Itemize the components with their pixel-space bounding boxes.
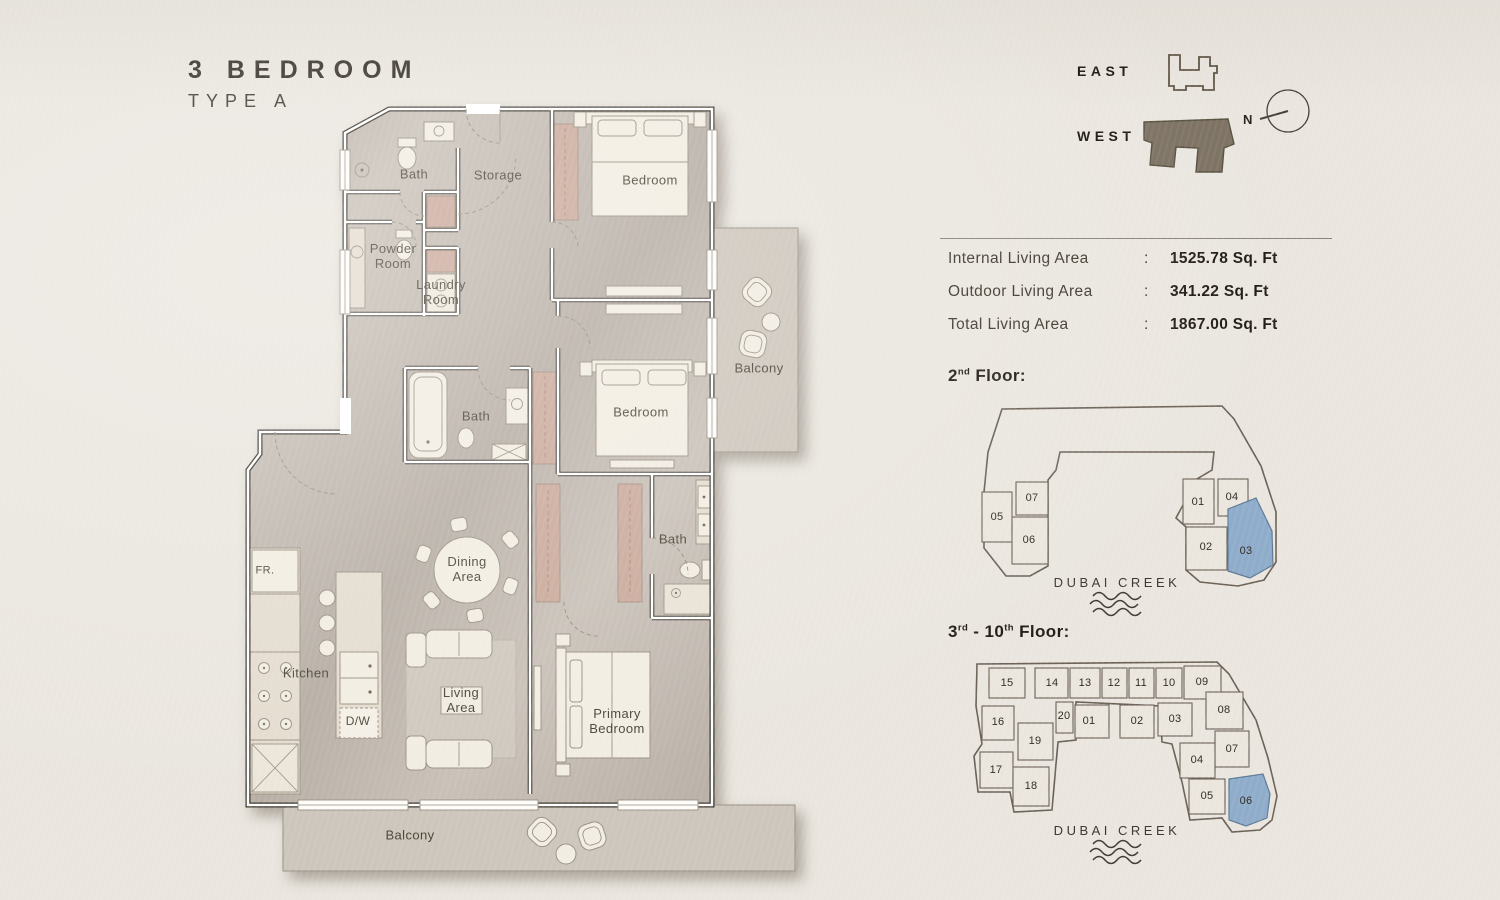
compass-icon — [1260, 90, 1309, 132]
floor3to10-unit-03: 03 — [1169, 713, 1182, 725]
floor3to10-unit-12: 12 — [1108, 677, 1121, 689]
creek-waves-icon — [1090, 593, 1141, 616]
west-building-icon — [1144, 119, 1234, 172]
room-label-bath-1: Bath — [400, 168, 428, 183]
room-label-living-area: Living Area — [443, 686, 479, 716]
floor2-heading-text: Floor: — [970, 366, 1026, 385]
floor3-ordinal: rd — [958, 622, 968, 633]
floor3to10-unit-07: 07 — [1226, 743, 1239, 755]
page-title: 3 BEDROOM TYPE A — [188, 56, 420, 112]
floor2-unit-06: 06 — [1023, 534, 1036, 546]
stat-label: Outdoor Living Area — [948, 283, 1144, 301]
plan-variant-subtitle: TYPE A — [188, 91, 420, 112]
stat-label: Total Living Area — [948, 316, 1144, 334]
floor2-unit-05: 05 — [991, 511, 1004, 523]
room-label-bedroom-2: Bedroom — [613, 406, 669, 421]
floor2-ordinal: nd — [958, 366, 970, 377]
floor2-unit-03-highlighted: 03 — [1240, 545, 1253, 557]
compass-north-label: N — [1243, 112, 1252, 127]
plan-type-title: 3 BEDROOM — [188, 56, 420, 85]
floor2-unit-04: 04 — [1226, 491, 1239, 503]
room-label-balcony-right: Balcony — [734, 362, 783, 377]
room-label-primary-bedroom: Primary Bedroom — [589, 707, 645, 737]
west-label: WEST — [1077, 128, 1135, 144]
floor3to10-unit-10: 10 — [1163, 677, 1176, 689]
stat-value: 1867.00 Sq. Ft — [1170, 316, 1348, 334]
room-label-bath-3: Bath — [659, 533, 687, 548]
floor3to10-unit-05: 05 — [1201, 790, 1214, 802]
floor-plan — [230, 95, 820, 885]
room-label-dishwasher: D/W — [346, 715, 371, 729]
floor3to10-unit-08: 08 — [1218, 704, 1231, 716]
floor3to10-unit-15: 15 — [1001, 677, 1014, 689]
floor3to10-unit-09: 09 — [1196, 676, 1209, 688]
stat-row-total: Total Living Area : 1867.00 Sq. Ft — [948, 316, 1348, 334]
floor3to10-unit-01: 01 — [1083, 715, 1096, 727]
room-label-laundry-room: Laundry Room — [416, 278, 466, 308]
floor3to10-unit-17: 17 — [990, 764, 1003, 776]
floor3to10-unit-14: 14 — [1046, 677, 1059, 689]
area-stats: Internal Living Area : 1525.78 Sq. Ft Ou… — [948, 250, 1348, 349]
room-label-kitchen: Kitchen — [283, 667, 329, 682]
room-label-bath-2: Bath — [462, 410, 490, 425]
stat-label: Internal Living Area — [948, 250, 1144, 268]
east-building-icon — [1169, 55, 1217, 90]
floor2-unit-07: 07 — [1026, 492, 1039, 504]
brochure-page: 3 BEDROOM TYPE A EAST WEST N Internal Li… — [0, 0, 1500, 900]
room-label-balcony-bottom: Balcony — [385, 829, 434, 844]
room-label-storage: Storage — [474, 169, 522, 184]
floor2-unit-01: 01 — [1192, 496, 1205, 508]
floor3to10-heading-text: Floor: — [1014, 622, 1070, 641]
floor3to10-unit-19: 19 — [1029, 735, 1042, 747]
floor2-unit-02: 02 — [1200, 541, 1213, 553]
room-label-dining-area: Dining Area — [447, 555, 486, 585]
east-label: EAST — [1077, 63, 1132, 79]
floor10-ordinal: th — [1004, 622, 1014, 633]
floor10-number: 10 — [984, 622, 1004, 641]
floor3to10-unit-18: 18 — [1025, 780, 1038, 792]
stat-separator: : — [1144, 316, 1170, 334]
floor2-number: 2 — [948, 366, 958, 385]
stats-divider — [940, 238, 1332, 239]
stat-row-internal: Internal Living Area : 1525.78 Sq. Ft — [948, 250, 1348, 268]
dubai-creek-label-floor2: DUBAI CREEK — [1054, 575, 1181, 590]
stat-value: 341.22 Sq. Ft — [1170, 283, 1348, 301]
stat-row-outdoor: Outdoor Living Area : 341.22 Sq. Ft — [948, 283, 1348, 301]
stat-separator: : — [1144, 250, 1170, 268]
floor3to10-unit-06-highlighted: 06 — [1240, 795, 1253, 807]
graphics-layer — [0, 0, 1500, 900]
room-label-powder-room: Powder Room — [370, 242, 416, 272]
floor3to10-unit-13: 13 — [1079, 677, 1092, 689]
floor3to10-unit-02: 02 — [1131, 715, 1144, 727]
floor-range-dash: - — [968, 622, 984, 641]
creek-waves-icon-2 — [1090, 841, 1141, 864]
room-label-bedroom-1: Bedroom — [622, 174, 678, 189]
floor3to10-unit-04: 04 — [1191, 754, 1204, 766]
floor3to10-unit-11: 11 — [1135, 677, 1147, 689]
stat-value: 1525.78 Sq. Ft — [1170, 250, 1348, 268]
floor3to10-unit-16: 16 — [992, 716, 1005, 728]
room-label-fridge: FR. — [256, 565, 275, 578]
stat-separator: : — [1144, 283, 1170, 301]
floor3to10-heading: 3rd - 10th Floor: — [948, 622, 1070, 642]
floor2-heading: 2nd Floor: — [948, 366, 1026, 386]
floor3to10-unit-20: 20 — [1058, 710, 1071, 722]
highlighted-unit-03 — [1228, 498, 1273, 578]
floor3-number: 3 — [948, 622, 958, 641]
dubai-creek-label-floor3to10: DUBAI CREEK — [1054, 823, 1181, 838]
